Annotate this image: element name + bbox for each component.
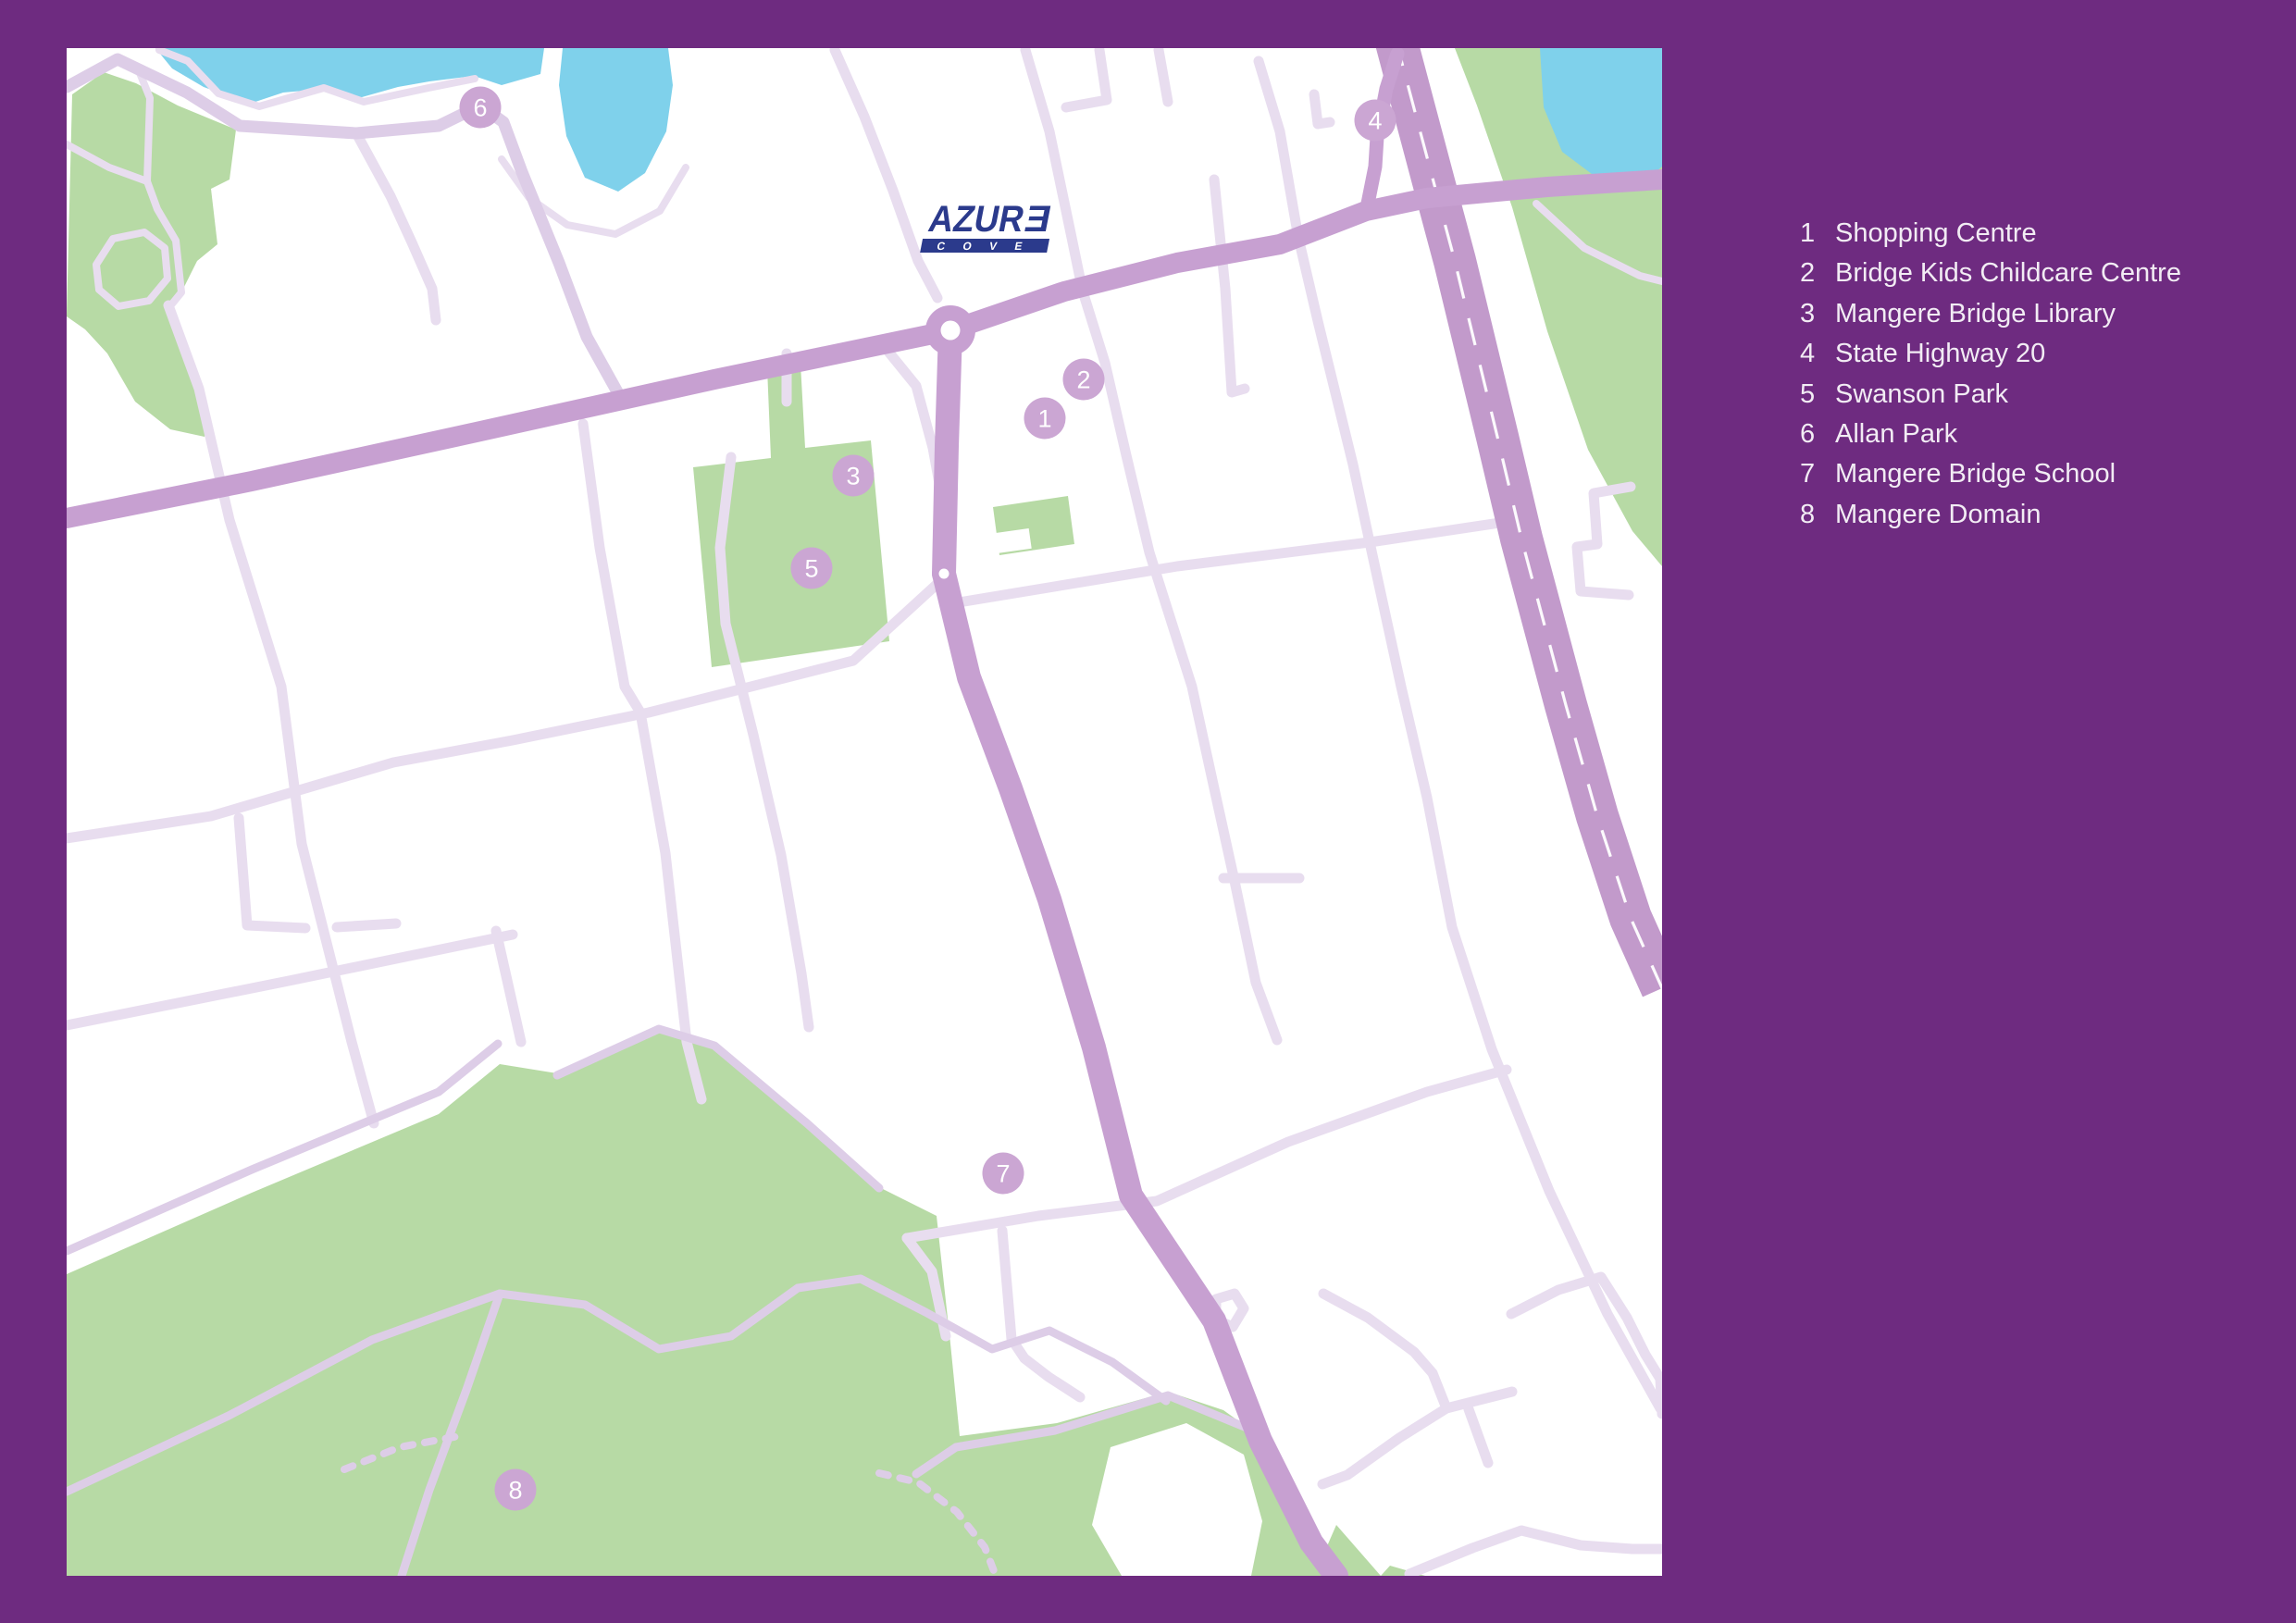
minor-road xyxy=(835,50,937,298)
map-marker: 6 xyxy=(460,87,502,129)
legend-item-label: Swanson Park xyxy=(1835,375,2008,415)
legend-item: 8 Mangere Domain xyxy=(1800,495,2181,535)
minor-road xyxy=(1446,1392,1512,1408)
legend-item-label: Mangere Bridge Library xyxy=(1835,294,2116,334)
legend-item-number: 5 xyxy=(1800,375,1835,415)
map-marker: 2 xyxy=(1063,359,1105,401)
legend-item: 7 Mangere Bridge School xyxy=(1800,454,2181,494)
legend-item-number: 6 xyxy=(1800,415,1835,454)
water-bay-east xyxy=(559,48,673,192)
logo-main-text: AZUR xyxy=(925,197,1028,240)
legend-item-label: Allan Park xyxy=(1835,415,1957,454)
legend-item-number: 8 xyxy=(1800,495,1835,535)
marker-number: 4 xyxy=(1368,107,1382,135)
marker-number: 7 xyxy=(996,1160,1010,1188)
junction-circle-center xyxy=(939,569,949,579)
azure-cove-logo: AZUR E C O V E xyxy=(920,197,1058,253)
minor-road xyxy=(496,931,521,1042)
legend-item-number: 4 xyxy=(1800,334,1835,374)
legend-item: 3 Mangere Bridge Library xyxy=(1800,294,2181,334)
map-marker: 5 xyxy=(791,548,833,589)
legend-item-label: Bridge Kids Childcare Centre xyxy=(1835,254,2181,293)
legend-item-label: Mangere Domain xyxy=(1835,495,2041,535)
legend-item-label: Mangere Bridge School xyxy=(1835,454,2116,494)
legend-item-label: State Highway 20 xyxy=(1835,334,2045,374)
minor-road xyxy=(583,424,701,1099)
legend-item-number: 1 xyxy=(1800,214,1835,254)
map-panel: AZUR E C O V E 1 2 3 xyxy=(67,48,1662,1576)
map-marker: 4 xyxy=(1355,100,1396,142)
marker-number: 2 xyxy=(1076,366,1090,394)
legend-item: 5 Swanson Park xyxy=(1800,375,2181,415)
minor-road xyxy=(1409,1530,1662,1574)
legend-item: 6 Allan Park xyxy=(1800,415,2181,454)
marker-number: 6 xyxy=(473,94,487,122)
minor-road xyxy=(1314,94,1330,124)
minor-road xyxy=(356,133,436,320)
minor-road xyxy=(1214,180,1245,392)
legend-item-number: 3 xyxy=(1800,294,1835,334)
map-marker: 8 xyxy=(495,1469,537,1511)
marker-number: 1 xyxy=(1037,405,1051,433)
legend-item-number: 7 xyxy=(1800,454,1835,494)
page: AZUR E C O V E 1 2 3 xyxy=(0,0,2296,1623)
legend-item-number: 2 xyxy=(1800,254,1835,293)
legend-item: 1 Shopping Centre xyxy=(1800,214,2181,254)
roundabout-center xyxy=(941,321,961,341)
minor-road xyxy=(67,935,513,1025)
legend-item: 2 Bridge Kids Childcare Centre xyxy=(1800,254,2181,293)
logo-sub-text: C O V E xyxy=(936,240,1031,253)
legend: 1 Shopping Centre 2 Bridge Kids Childcar… xyxy=(1800,214,2181,535)
parks-layer xyxy=(67,48,1662,1576)
legend-item: 4 State Highway 20 xyxy=(1800,334,2181,374)
marker-number: 8 xyxy=(508,1477,522,1505)
minor-road xyxy=(337,923,396,927)
minor-road xyxy=(1066,50,1107,107)
map-svg: AZUR E C O V E 1 2 3 xyxy=(67,48,1662,1576)
legend-item-label: Shopping Centre xyxy=(1835,214,2037,254)
minor-road xyxy=(1002,1231,1080,1397)
minor-road xyxy=(1322,1294,1446,1484)
map-marker: 3 xyxy=(833,455,875,497)
minor-road xyxy=(1159,50,1168,102)
map-marker: 7 xyxy=(983,1153,1024,1195)
marker-number: 3 xyxy=(846,463,860,490)
marker-number: 5 xyxy=(804,555,818,583)
minor-road xyxy=(1511,1277,1662,1414)
minor-road xyxy=(1469,1409,1488,1463)
map-marker: 1 xyxy=(1024,398,1066,440)
